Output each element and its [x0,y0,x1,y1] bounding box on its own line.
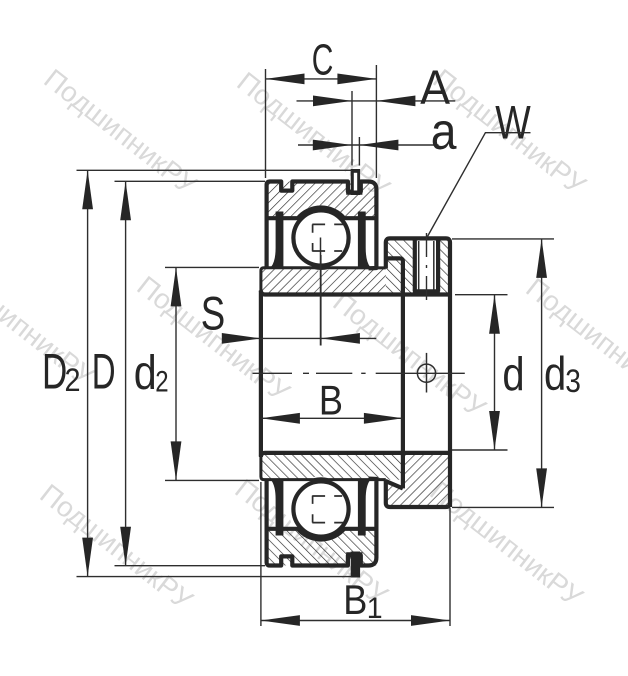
svg-text:d: d [134,346,157,400]
svg-text:3: 3 [565,365,581,400]
svg-text:d: d [544,349,566,401]
svg-text:C: C [312,35,334,84]
svg-text:W: W [495,97,531,150]
svg-text:S: S [201,287,225,339]
svg-text:2: 2 [65,363,81,399]
svg-text:2: 2 [155,364,168,398]
svg-text:1: 1 [367,592,383,625]
svg-text:d: d [502,349,524,401]
svg-text:a: a [431,103,457,161]
svg-text:D: D [92,344,116,399]
svg-text:B: B [343,578,367,624]
svg-text:B: B [319,378,343,424]
svg-text:D: D [42,344,67,400]
